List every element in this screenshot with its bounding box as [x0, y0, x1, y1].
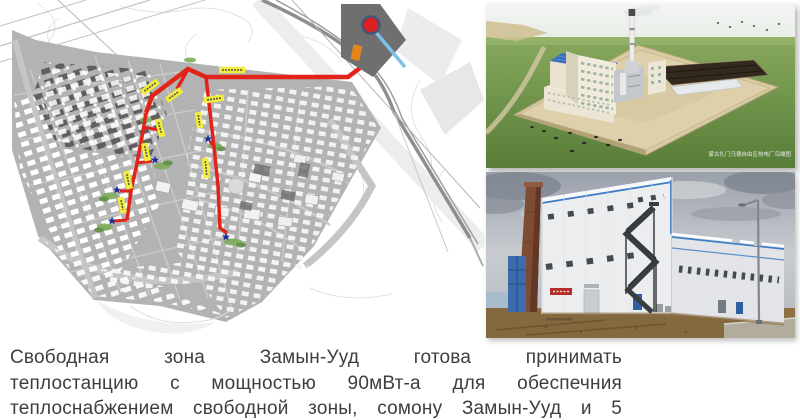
slide: 蒙古扎门乌德自由区热电厂鸟瞰图 — [0, 0, 800, 420]
photo-boiler-hopper — [508, 256, 526, 312]
plant-marker-icon — [363, 17, 380, 34]
plant-photo-image — [486, 172, 795, 338]
text-line-1: Свободная зона Замын-Ууд готова принимат… — [10, 345, 622, 371]
side-tower — [648, 60, 666, 95]
chimney — [629, 9, 635, 63]
render-caption: 蒙古扎门乌德自由区热电厂鸟瞰图 — [708, 150, 791, 158]
slide-text-block: Свободная зона Замын-Ууд готова принимат… — [10, 345, 622, 420]
gray-door — [584, 290, 599, 314]
text-line-3: теплоснабжением свободной зоны, сомону З… — [10, 396, 622, 420]
plant-render-image: 蒙古扎门乌德自由区热电厂鸟瞰图 — [486, 3, 795, 168]
heat-network-map — [0, 0, 484, 346]
text-line-2: теплостанцию с мощностью 90мВт-а для обе… — [10, 371, 622, 397]
